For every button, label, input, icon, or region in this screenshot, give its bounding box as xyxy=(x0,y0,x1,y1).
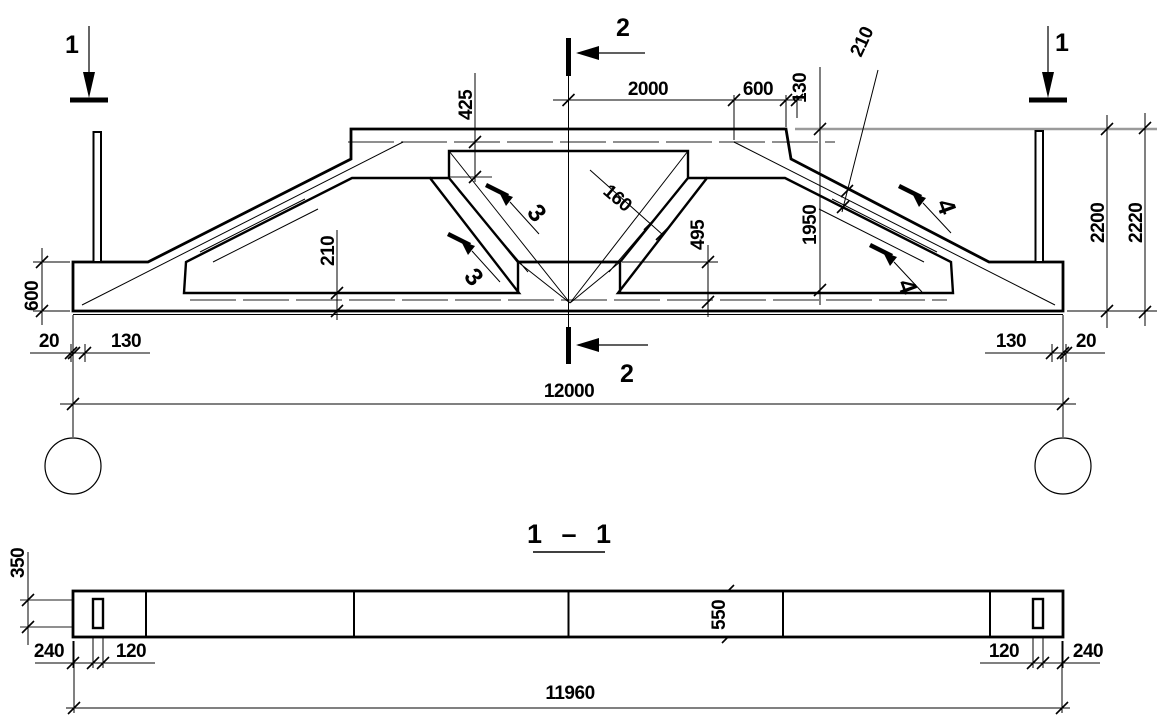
dim-12000: 12000 xyxy=(544,381,594,402)
dim-20-bottom-left: 20 xyxy=(39,331,59,352)
marker-4a-label: 4 xyxy=(930,195,961,218)
cut34-plane-bars xyxy=(448,185,921,256)
grid-bubble-left xyxy=(45,438,101,494)
dim-550: 550 xyxy=(709,600,730,630)
dim-600-top: 600 xyxy=(743,79,773,100)
dim-120-left: 120 xyxy=(116,641,146,662)
right-opening xyxy=(618,178,953,293)
cut2-bottom-arrow-icon xyxy=(576,338,599,352)
lifting-loop-right xyxy=(1033,599,1043,628)
section-title: 1 – 1 xyxy=(527,519,617,549)
dim-20-bottom-right: 20 xyxy=(1076,331,1096,352)
dim-2220: 2220 xyxy=(1126,203,1147,243)
lifting-loop-left xyxy=(93,599,103,628)
marker-3b-label: 3 xyxy=(458,263,488,292)
dim-1950: 1950 xyxy=(800,205,821,245)
left-end-post xyxy=(94,132,102,262)
dim-11960: 11960 xyxy=(545,683,594,704)
marker-2-top-label: 2 xyxy=(616,14,630,42)
cut1-left-arrow-icon xyxy=(83,72,95,98)
dim-2200: 2200 xyxy=(1088,203,1109,243)
truss-drawing-canvas: 1 1 2 2 3 3 4 4 2000 600 130 425 1950 16… xyxy=(0,0,1161,718)
cut1-right-arrow-icon xyxy=(1042,72,1054,98)
cut2-top-arrow-icon xyxy=(576,46,599,60)
dim-495: 495 xyxy=(688,219,709,250)
dim-240-left: 240 xyxy=(34,641,64,662)
dim-210-bottom: 210 xyxy=(318,236,339,266)
dim-2000: 2000 xyxy=(628,79,668,100)
dim-600-left: 600 xyxy=(22,281,43,311)
marker-3a-label: 3 xyxy=(521,199,551,228)
dim-210-slope: 210 xyxy=(846,24,878,60)
drawing-sheet: 1 1 2 2 3 3 4 4 2000 600 130 425 1950 16… xyxy=(0,0,1161,718)
right-end-post xyxy=(1036,131,1044,262)
marker-2-bottom-label: 2 xyxy=(620,360,634,388)
marker-1-right-label: 1 xyxy=(1055,29,1069,57)
marker-4b-label: 4 xyxy=(891,275,922,298)
dim-130-bottom-right: 130 xyxy=(996,331,1026,352)
marker-1-left-label: 1 xyxy=(65,31,79,59)
dim-160: 160 xyxy=(599,181,636,217)
dim-425: 425 xyxy=(456,89,477,120)
grid-axes xyxy=(45,438,1091,494)
dim-120-right: 120 xyxy=(989,641,1019,662)
dim-240-right: 240 xyxy=(1073,641,1103,662)
dim-130-top: 130 xyxy=(790,73,811,103)
dim-350: 350 xyxy=(8,548,29,578)
grid-bubble-right xyxy=(1035,438,1091,494)
dim-130-bottom-left: 130 xyxy=(111,331,141,352)
